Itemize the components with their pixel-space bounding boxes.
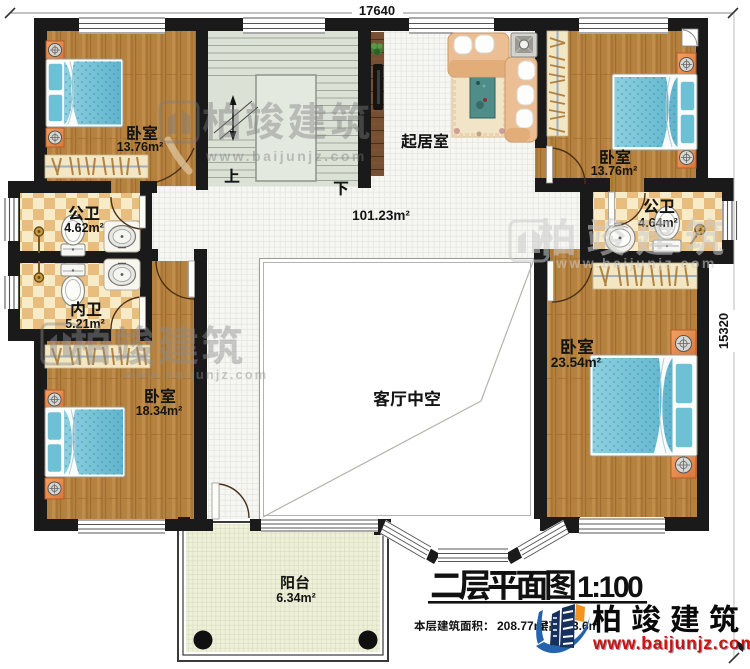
svg-text:15320: 15320: [716, 313, 731, 349]
svg-text:101.23m²: 101.23m²: [352, 208, 410, 223]
svg-text:6.34m²: 6.34m²: [276, 591, 316, 605]
svg-text:18.34m²: 18.34m²: [136, 404, 183, 418]
svg-text:www.baijunjz.com: www.baijunjz.com: [592, 633, 750, 653]
svg-text:www.baijunjz.com: www.baijunjz.com: [555, 255, 717, 271]
svg-text:www.baijunjz.com: www.baijunjz.com: [205, 148, 367, 164]
svg-text:23.54m²: 23.54m²: [551, 355, 602, 370]
svg-text:13.76m²: 13.76m²: [591, 164, 638, 178]
svg-text:4.62m²: 4.62m²: [64, 221, 104, 235]
svg-text:www.baijunjz.com: www.baijunjz.com: [123, 367, 268, 382]
svg-text:17640: 17640: [359, 3, 395, 18]
svg-text:13.76m²: 13.76m²: [117, 140, 164, 154]
svg-text:1:100: 1:100: [577, 571, 643, 604]
